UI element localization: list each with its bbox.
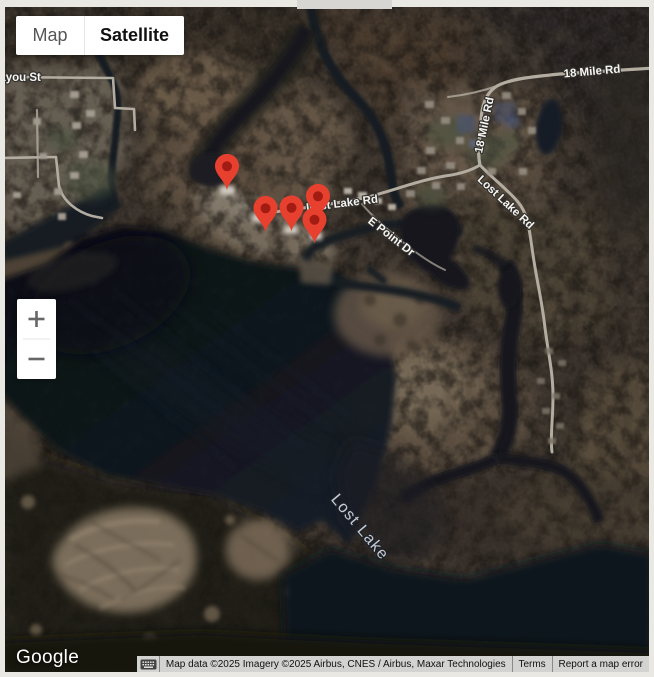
- svg-text:Bayou St: Bayou St: [0, 72, 41, 84]
